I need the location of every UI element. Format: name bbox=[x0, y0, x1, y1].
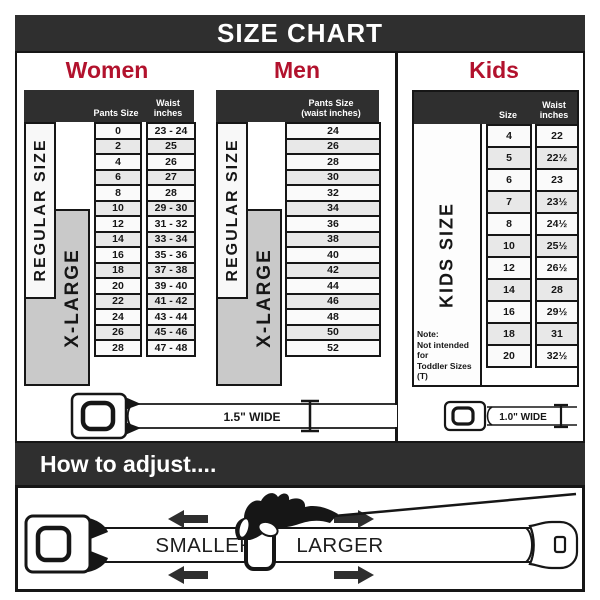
pants-size-cell: 28 bbox=[95, 340, 141, 356]
waist-cell: 45 - 46 bbox=[147, 325, 195, 341]
kids-table-row: 14 28 bbox=[487, 279, 578, 301]
pants-size-cell: 0 bbox=[95, 123, 141, 139]
pants-size-cell: 26 bbox=[286, 139, 380, 155]
pants-size-cell: 42 bbox=[286, 263, 380, 279]
waist-cell: 25½ bbox=[536, 235, 578, 257]
kids-table-row: 5 22½ bbox=[487, 147, 578, 169]
pants-size-cell: 12 bbox=[95, 216, 141, 232]
waist-cell: 26½ bbox=[536, 257, 578, 279]
pants-size-cell: 4 bbox=[95, 154, 141, 170]
arm-line bbox=[334, 494, 576, 516]
kids-size-header: Size bbox=[486, 92, 530, 124]
kids-table-row: 12 26½ bbox=[487, 257, 578, 279]
men-table-row: 26 bbox=[286, 139, 380, 155]
arrow-right-icon bbox=[334, 566, 374, 584]
women-table-row: 2 25 bbox=[95, 139, 195, 155]
women-table-row: 26 45 - 46 bbox=[95, 325, 195, 341]
pants-size-cell: 44 bbox=[286, 278, 380, 294]
size-cell: 4 bbox=[487, 125, 531, 147]
women-pants-size-header: Pants Size bbox=[90, 90, 142, 122]
waist-cell: 29½ bbox=[536, 301, 578, 323]
pants-size-cell: 28 bbox=[286, 154, 380, 170]
belt-adjustment-illustration: SMALLER LARGER bbox=[18, 488, 582, 589]
panel-divider bbox=[395, 53, 398, 441]
kids-belt-width-label: 1.0" WIDE bbox=[499, 412, 547, 423]
women-size-category-labels: REGULAR SIZE X-LARGE bbox=[24, 122, 90, 386]
waist-cell: 41 - 42 bbox=[147, 294, 195, 310]
men-size-category-labels: REGULAR SIZE X-LARGE bbox=[216, 122, 282, 386]
belt-buckle-icon bbox=[445, 402, 485, 430]
belt-tip-hole bbox=[555, 537, 565, 552]
kids-size-table: Size Waist inches KIDS SIZE Note: Not in… bbox=[412, 90, 579, 387]
men-regular-size-label: REGULAR SIZE bbox=[224, 138, 241, 281]
kids-table-header: Size Waist inches bbox=[414, 92, 577, 124]
kids-size-rows: 4 22 5 22½ 6 23 bbox=[486, 124, 579, 368]
women-table-row: 16 35 - 36 bbox=[95, 247, 195, 263]
size-cell: 7 bbox=[487, 191, 531, 213]
adjustment-illustration-box: SMALLER LARGER bbox=[15, 485, 585, 592]
kids-table-row: 4 22 bbox=[487, 125, 578, 147]
pants-size-cell: 24 bbox=[286, 123, 380, 139]
men-heading: Men bbox=[227, 57, 367, 84]
size-cell: 6 bbox=[487, 169, 531, 191]
waist-cell: 28 bbox=[147, 185, 195, 201]
women-table-row: 22 41 - 42 bbox=[95, 294, 195, 310]
pants-size-cell: 26 bbox=[95, 325, 141, 341]
women-table-row: 4 26 bbox=[95, 154, 195, 170]
kids-table-row: 18 31 bbox=[487, 323, 578, 345]
pants-size-cell: 34 bbox=[286, 201, 380, 217]
belt-buckle-icon bbox=[72, 394, 126, 438]
women-table-row: 18 37 - 38 bbox=[95, 263, 195, 279]
men-table-row: 30 bbox=[286, 170, 380, 186]
men-table-row: 36 bbox=[286, 216, 380, 232]
pants-size-cell: 8 bbox=[95, 185, 141, 201]
women-table-row: 24 43 - 44 bbox=[95, 309, 195, 325]
pants-size-cell: 50 bbox=[286, 325, 380, 341]
men-table-row: 32 bbox=[286, 185, 380, 201]
size-cell: 16 bbox=[487, 301, 531, 323]
men-table-row: 24 bbox=[286, 123, 380, 139]
women-table-header: Pants Size Waist inches bbox=[24, 90, 194, 122]
pants-size-cell: 10 bbox=[95, 201, 141, 217]
pants-size-cell: 40 bbox=[286, 247, 380, 263]
size-cell: 8 bbox=[487, 213, 531, 235]
waist-cell: 39 - 40 bbox=[147, 278, 195, 294]
men-size-rows: 24 26 28 30 32 bbox=[285, 122, 381, 357]
men-table-row: 50 bbox=[286, 325, 380, 341]
kids-table-row: 16 29½ bbox=[487, 301, 578, 323]
men-table-row: 44 bbox=[286, 278, 380, 294]
waist-cell: 43 - 44 bbox=[147, 309, 195, 325]
waist-cell: 35 - 36 bbox=[147, 247, 195, 263]
women-size-table: Pants Size Waist inches REGULAR SIZE X-L… bbox=[24, 90, 194, 386]
women-regular-size-label: REGULAR SIZE bbox=[32, 138, 49, 281]
women-heading: Women bbox=[37, 57, 177, 84]
pants-size-cell: 14 bbox=[95, 232, 141, 248]
waist-cell: 24½ bbox=[536, 213, 578, 235]
size-cell: 20 bbox=[487, 345, 531, 367]
men-table-row: 52 bbox=[286, 340, 380, 356]
kids-table-row: 7 23½ bbox=[487, 191, 578, 213]
pants-size-cell: 52 bbox=[286, 340, 380, 356]
pants-size-cell: 2 bbox=[95, 139, 141, 155]
waist-cell: 37 - 38 bbox=[147, 263, 195, 279]
waist-cell: 28 bbox=[536, 279, 578, 301]
pants-size-cell: 6 bbox=[95, 170, 141, 186]
women-table-row: 12 31 - 32 bbox=[95, 216, 195, 232]
kids-belt-illustration: 1.0" WIDE bbox=[437, 400, 582, 432]
women-table-row: 8 28 bbox=[95, 185, 195, 201]
men-table-row: 40 bbox=[286, 247, 380, 263]
pants-size-cell: 18 bbox=[95, 263, 141, 279]
belt-buckle-icon bbox=[26, 516, 90, 572]
arrow-left-icon bbox=[168, 566, 208, 584]
how-to-adjust-title: How to adjust.... bbox=[40, 451, 216, 478]
women-table-row: 20 39 - 40 bbox=[95, 278, 195, 294]
men-table-row: 48 bbox=[286, 309, 380, 325]
page-title: SIZE CHART bbox=[15, 15, 585, 51]
women-table-row: 6 27 bbox=[95, 170, 195, 186]
pants-size-cell: 48 bbox=[286, 309, 380, 325]
men-table-row: 42 bbox=[286, 263, 380, 279]
how-to-adjust-bar: How to adjust.... bbox=[15, 443, 585, 485]
pants-size-cell: 16 bbox=[95, 247, 141, 263]
larger-label: LARGER bbox=[296, 534, 383, 557]
waist-cell: 23½ bbox=[536, 191, 578, 213]
size-cell: 14 bbox=[487, 279, 531, 301]
waist-cell: 33 - 34 bbox=[147, 232, 195, 248]
waist-cell: 22 bbox=[536, 125, 578, 147]
waist-cell: 29 - 30 bbox=[147, 201, 195, 217]
kids-size-side-label: KIDS SIZE bbox=[437, 201, 458, 307]
kids-table-row: 20 32½ bbox=[487, 345, 578, 367]
men-table-header: Pants Size (waist inches) bbox=[216, 90, 379, 122]
adult-belt-width-label: 1.5" WIDE bbox=[223, 410, 280, 424]
pants-size-cell: 30 bbox=[286, 170, 380, 186]
pants-size-cell: 36 bbox=[286, 216, 380, 232]
men-size-table: Pants Size (waist inches) REGULAR SIZE X… bbox=[216, 90, 379, 386]
kids-size-category-label: KIDS SIZE Note: Not intended for Toddler… bbox=[414, 124, 482, 385]
waist-cell: 26 bbox=[147, 154, 195, 170]
size-cell: 10 bbox=[487, 235, 531, 257]
size-cell: 12 bbox=[487, 257, 531, 279]
pants-size-cell: 24 bbox=[95, 309, 141, 325]
women-table-row: 10 29 - 30 bbox=[95, 201, 195, 217]
waist-cell: 23 - 24 bbox=[147, 123, 195, 139]
women-table-row: 28 47 - 48 bbox=[95, 340, 195, 356]
adult-belt-illustration: 1.5" WIDE bbox=[52, 392, 397, 440]
kids-table-row: 8 24½ bbox=[487, 213, 578, 235]
men-xlarge-label: X-LARGE bbox=[254, 248, 275, 348]
arrow-left-icon bbox=[168, 510, 208, 528]
women-size-rows: 0 23 - 24 2 25 4 26 bbox=[94, 122, 196, 357]
waist-cell: 27 bbox=[147, 170, 195, 186]
kids-table-row: 10 25½ bbox=[487, 235, 578, 257]
men-table-row: 38 bbox=[286, 232, 380, 248]
men-pants-size-header: Pants Size (waist inches) bbox=[296, 90, 366, 122]
waist-cell: 23 bbox=[536, 169, 578, 191]
waist-cell: 31 bbox=[536, 323, 578, 345]
women-xlarge-label: X-LARGE bbox=[62, 248, 83, 348]
size-tables-section: Women Men Kids Pants Size Waist inches R… bbox=[15, 51, 585, 443]
men-table-row: 46 bbox=[286, 294, 380, 310]
waist-cell: 25 bbox=[147, 139, 195, 155]
men-table-row: 34 bbox=[286, 201, 380, 217]
kids-heading: Kids bbox=[424, 57, 564, 84]
size-cell: 18 bbox=[487, 323, 531, 345]
kids-waist-header: Waist inches bbox=[533, 92, 575, 124]
women-table-row: 14 33 - 34 bbox=[95, 232, 195, 248]
pants-size-cell: 22 bbox=[95, 294, 141, 310]
pants-size-cell: 46 bbox=[286, 294, 380, 310]
belt-tip bbox=[530, 522, 577, 568]
women-waist-header: Waist inches bbox=[146, 90, 190, 122]
waist-cell: 31 - 32 bbox=[147, 216, 195, 232]
kids-table-row: 6 23 bbox=[487, 169, 578, 191]
pants-size-cell: 32 bbox=[286, 185, 380, 201]
pants-size-cell: 38 bbox=[286, 232, 380, 248]
pants-size-cell: 20 bbox=[95, 278, 141, 294]
size-cell: 5 bbox=[487, 147, 531, 169]
waist-cell: 32½ bbox=[536, 345, 578, 367]
waist-cell: 47 - 48 bbox=[147, 340, 195, 356]
men-table-row: 28 bbox=[286, 154, 380, 170]
kids-note: Note: Not intended for Toddler Sizes (T) bbox=[417, 329, 480, 382]
women-table-row: 0 23 - 24 bbox=[95, 123, 195, 139]
waist-cell: 22½ bbox=[536, 147, 578, 169]
